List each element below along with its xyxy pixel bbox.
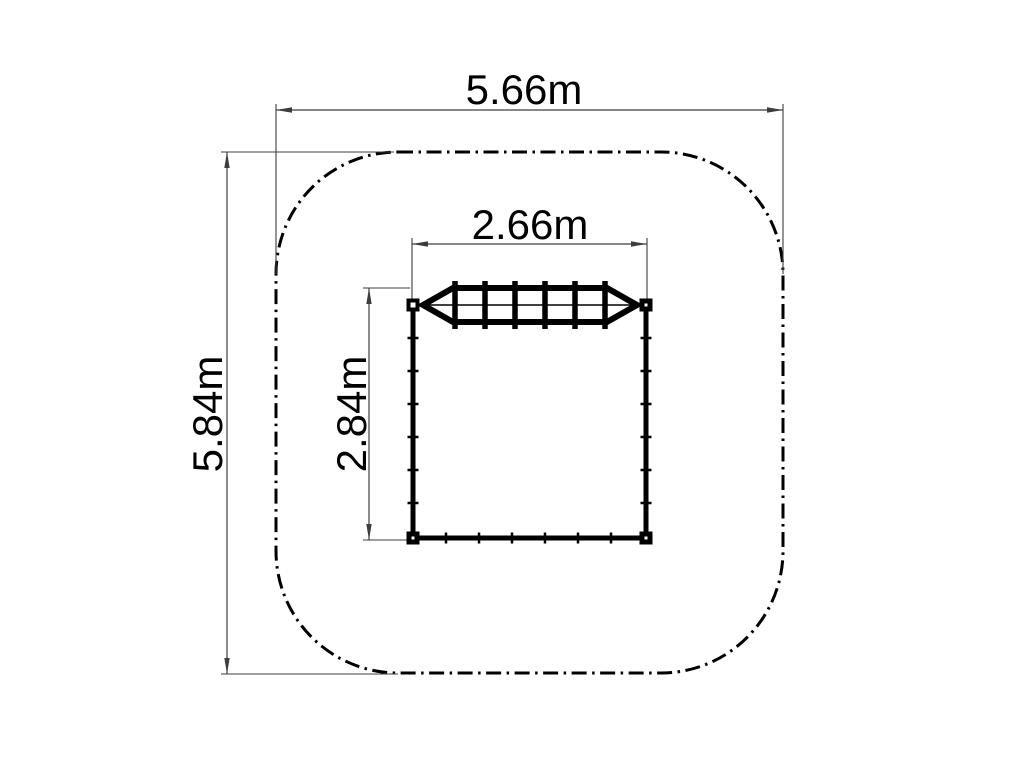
wall-tick [641,403,652,406]
post-bottom-left-hole [412,537,415,540]
wall-tick [641,337,652,340]
wall-tick [641,469,652,472]
wall-tick [641,370,652,373]
wall-tick [408,469,419,472]
wall-tick [408,403,419,406]
post-top-left-hole [411,303,416,308]
wall-tick [408,337,419,340]
dimension-label-overall-depth: 5.84m [187,356,229,473]
dimension-arrowhead [224,658,229,674]
climbing-net [419,281,640,329]
wall-tick [610,533,613,544]
dimension-arrowhead [276,107,292,112]
dimension-arrowhead [366,524,371,540]
equipment-frame [411,305,649,540]
post-top-right-hole [645,304,648,307]
technical-drawing-page: 5.66m 5.84m 2.66m 2.84m [0,0,1024,758]
dimension-arrowhead [366,288,371,304]
wall-tick [408,436,419,439]
dimension-label-equipment-depth: 2.84m [331,356,373,473]
dimension-label-equipment-width: 2.66m [472,204,589,246]
wall-tick [641,502,652,505]
drawing-canvas [0,0,1024,758]
wall-tick [511,533,514,544]
wall-tick [408,502,419,505]
wall-tick [478,533,481,544]
wall-tick [544,533,547,544]
post-bottom-right-hole [645,537,648,540]
dimension-overall-width [276,104,783,274]
dimension-arrowhead [767,107,783,112]
wall-tick [408,370,419,373]
wall-tick [577,533,580,544]
corner-posts [407,299,653,545]
wall-tick [641,436,652,439]
dimension-label-overall-width: 5.66m [466,69,583,111]
dimension-arrowhead [224,152,229,168]
dimension-arrowhead [631,241,647,246]
wall-tick [445,533,448,544]
dimension-arrowhead [412,241,428,246]
